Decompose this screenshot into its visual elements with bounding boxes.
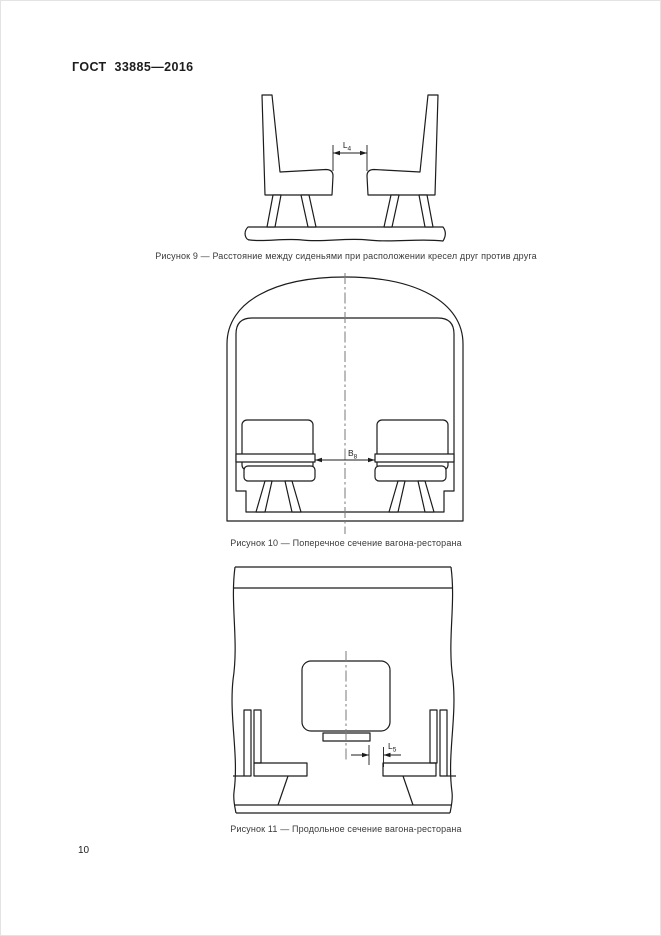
seat-right (367, 95, 438, 227)
seat-right-back-post-inner (430, 710, 437, 763)
arrowhead-right (368, 458, 375, 462)
dimension-l4: L4 (333, 140, 367, 171)
arrowhead-left (315, 458, 322, 462)
standard-number-header: ГОСТ 33885—2016 (72, 60, 194, 74)
seat-right-table-slat (375, 454, 454, 462)
seat-left-pedestal-leg-outer (256, 481, 272, 512)
document-page: { "document": { "header": "ГОСТ 33885—20… (0, 0, 661, 936)
dimension-label-l4: L4 (343, 140, 352, 153)
floor (245, 227, 445, 241)
seat-left-rear-leg (301, 195, 316, 227)
figure-9-caption: Рисунок 9 — Расстояние между сиденьями п… (31, 251, 661, 261)
seat-left-body (262, 95, 333, 195)
seat-right (375, 420, 454, 512)
seat-left-back-post-inner (254, 710, 261, 763)
floor-strip (245, 227, 445, 241)
seat-right-rear-leg (384, 195, 399, 227)
figure-10-svg: B8 (222, 272, 468, 536)
seat-right-front-leg (419, 195, 433, 227)
figure-9-svg: L4 (228, 88, 458, 248)
dimension-label-l5: L5 (388, 741, 397, 754)
seat-left-cushion (244, 466, 315, 481)
arrowhead-right (384, 753, 391, 757)
seat-left (262, 95, 333, 227)
seat-left-table-slat (236, 454, 315, 462)
seat-right-body (367, 95, 438, 195)
seat-left-back-post-outer (244, 710, 251, 776)
seat-right-cushion (375, 466, 446, 481)
figure-11-caption: Рисунок 11 — Продольное сечение вагона-р… (31, 824, 661, 834)
floor-support-right (403, 776, 413, 805)
seat-left-pedestal-leg-inner (285, 481, 301, 512)
figure-11-drawing: L5 (228, 560, 458, 818)
seat-left (236, 420, 315, 512)
page-number: 10 (78, 845, 89, 856)
seat-right-cushion-bar (383, 763, 436, 776)
seat-right (383, 710, 456, 776)
seat-left-cushion-bar (254, 763, 307, 776)
seat-right-pedestal-leg-inner (389, 481, 405, 512)
seat-right-back-post-outer (440, 710, 447, 776)
floor-support-left (278, 776, 288, 805)
figure-9-drawing: L4 (228, 88, 458, 248)
dimension-label-b8: B8 (348, 448, 358, 461)
arrowhead-left (362, 753, 369, 757)
figure-11-svg: L5 (228, 560, 458, 818)
arrowhead-right (360, 151, 367, 155)
figure-10-drawing: B8 (222, 272, 468, 536)
seat-left (233, 710, 307, 776)
seat-left-front-leg (267, 195, 281, 227)
seat-right-pedestal-leg-outer (418, 481, 434, 512)
figure-10-caption: Рисунок 10 — Поперечное сечение вагона-р… (31, 538, 661, 548)
arrowhead-left (333, 151, 340, 155)
